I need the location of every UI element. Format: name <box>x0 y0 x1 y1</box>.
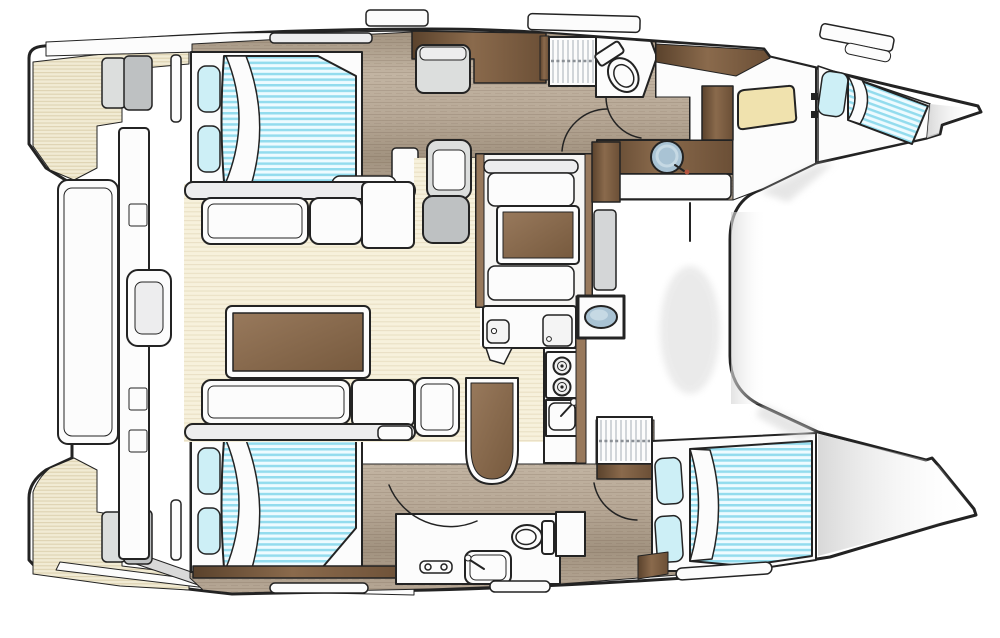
seat-cushion <box>488 173 574 206</box>
door-track <box>171 500 181 560</box>
corner-seat-port <box>102 56 152 110</box>
sofa-corner-unit <box>362 182 414 248</box>
shower-icon <box>549 37 596 86</box>
sink-icon <box>543 315 572 346</box>
hull-sill-dark <box>638 552 668 579</box>
hull-cabinet <box>416 45 470 93</box>
shower-mixer-icon <box>420 561 452 573</box>
door-handle-grip <box>135 282 163 334</box>
sofa-corner-unit <box>352 380 414 426</box>
pillow-icon <box>198 448 220 494</box>
chart-table <box>497 206 579 264</box>
deck-hatch <box>528 14 640 33</box>
table-top-walnut <box>503 212 573 258</box>
pillow-icon <box>198 126 220 172</box>
starboard-forward-cabin <box>638 433 973 579</box>
dining-table <box>226 306 370 378</box>
deck-hatch <box>366 10 428 26</box>
shower-icon <box>597 417 652 464</box>
hull-sill-dark <box>597 464 652 479</box>
door-window <box>129 204 147 226</box>
hull-shelf-dark <box>193 566 414 578</box>
wall-dark <box>540 36 549 80</box>
platform-trim <box>476 154 484 307</box>
sofa-cushion <box>310 198 362 244</box>
pillow-icon <box>198 66 220 112</box>
catamaran-deck-plan <box>0 0 1000 638</box>
nav-station <box>476 154 592 307</box>
sink-with-faucet-icon <box>546 399 580 436</box>
seat-back <box>484 160 578 173</box>
door-window <box>129 430 147 452</box>
sofa-cushion <box>202 380 350 424</box>
stove-icon <box>546 352 578 398</box>
desk-pad <box>738 86 796 129</box>
bath-cabinet <box>556 512 585 556</box>
faucet-dot <box>465 555 471 561</box>
sink-small-icon <box>487 320 509 343</box>
deck-hatch-bar <box>270 33 372 43</box>
table-top-walnut <box>233 313 363 371</box>
seat-cushion <box>488 266 574 300</box>
deck-hatch <box>270 583 368 593</box>
wall-shadow <box>731 212 767 404</box>
cockpit-bench-cushion <box>64 188 112 436</box>
pillow-icon <box>817 70 849 117</box>
sofa-cushion <box>202 198 308 244</box>
door-track <box>171 55 181 122</box>
port-aft-cabin <box>191 52 362 186</box>
basin-hi <box>590 310 608 321</box>
wall-panel <box>594 210 616 290</box>
oval-basin-unit <box>578 296 624 338</box>
floor-shadow <box>660 266 720 394</box>
platform-trim <box>585 154 592 307</box>
table-top-walnut <box>471 383 513 479</box>
folding-table <box>466 378 518 484</box>
locker <box>378 426 412 440</box>
pillow-icon <box>654 457 683 505</box>
wardrobe-dark <box>702 86 733 140</box>
starboard-head <box>396 512 585 584</box>
door-window <box>129 388 147 410</box>
faucet-dot <box>685 170 690 175</box>
floor-plan-page: Catamaran yacht interior deck plan, over… <box>0 0 1000 638</box>
deck-hatch <box>490 581 550 592</box>
pillow-icon <box>198 508 220 554</box>
washbasin-icon <box>465 551 511 584</box>
wall-cabinet-dark <box>592 142 620 202</box>
nav-seat <box>423 140 471 243</box>
